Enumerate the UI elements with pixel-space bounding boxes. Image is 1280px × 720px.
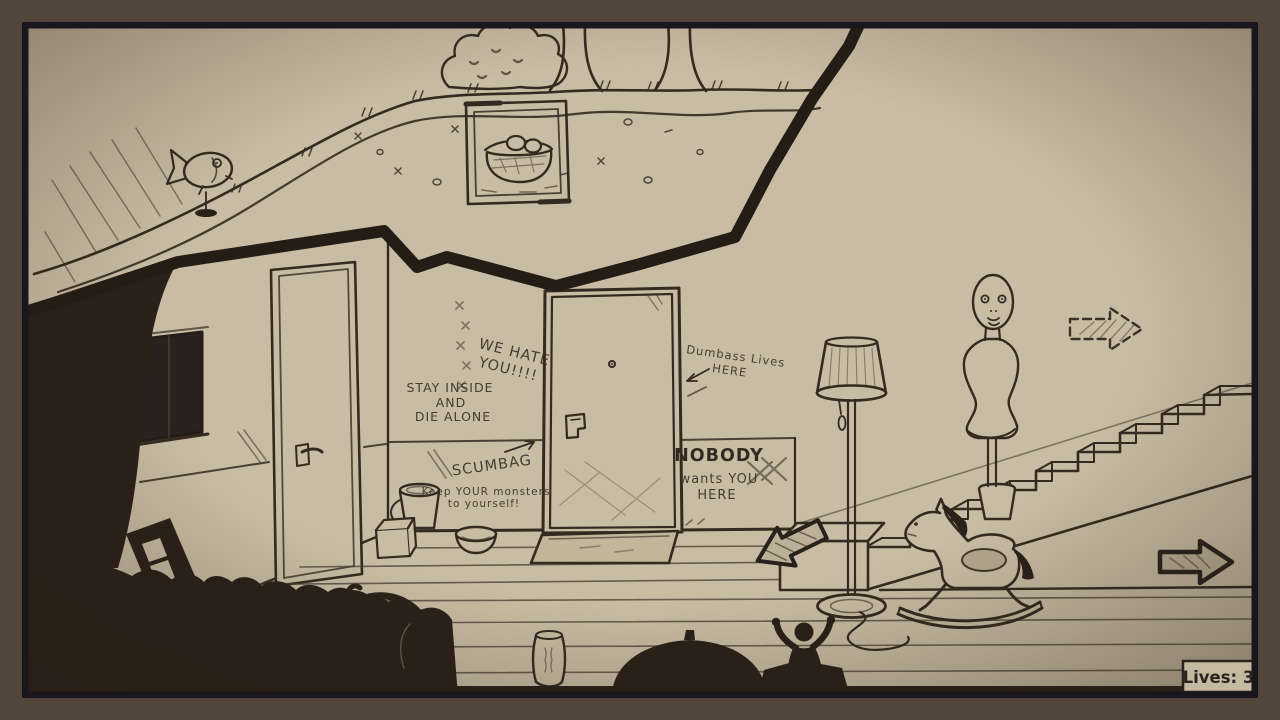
game-scene: WE HATE YOU!!!! STAY INSIDE AND DIE ALON…	[0, 0, 1280, 720]
lives-counter: Lives: 3	[1183, 668, 1255, 687]
vignette-overlay	[24, 24, 1256, 697]
scene-canvas: WE HATE YOU!!!! STAY INSIDE AND DIE ALON…	[0, 0, 1280, 720]
hud: Lives: 3	[1183, 661, 1255, 692]
